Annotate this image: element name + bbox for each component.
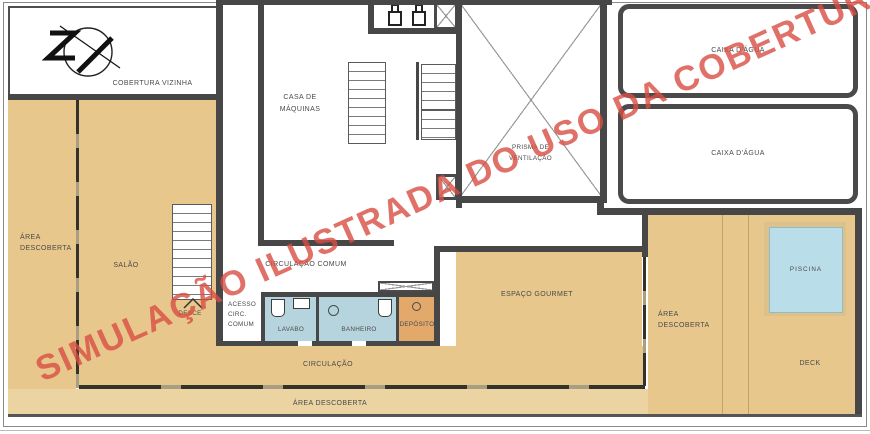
caixa-dagua-2: CAIXA D'ÁGUA (618, 104, 858, 204)
piscina-pool: PISCINA (769, 227, 843, 313)
deck-line-2 (748, 215, 749, 414)
wall-top (216, 0, 612, 5)
wall-gourmet-top (434, 246, 648, 252)
circulacao-label: CIRCULAÇÃO (273, 360, 383, 371)
stairs-center-rail (416, 62, 419, 140)
deck-label: DECK (780, 359, 840, 370)
piscina-label: PISCINA (790, 265, 822, 274)
casa-de-maquinas-label: CASA DE MÁQUINAS (265, 92, 335, 116)
pump-icon (410, 3, 428, 27)
glass-wall-gourmet-right (643, 257, 646, 386)
area-descoberta-right-label: ÁREA DESCOBERTA (658, 310, 714, 331)
deposito-label: DEPÓSITO (395, 320, 439, 329)
glass-wall-bottom (79, 385, 645, 389)
wall-salao-top (8, 94, 217, 100)
sink-icon (293, 298, 310, 309)
area-descoberta-bottom-label: ÁREA DESCOBERTA (275, 399, 385, 410)
wall-below-tanks (597, 208, 862, 215)
stairs-casa-maquinas-left (348, 62, 386, 144)
plan-bottom-edge-line (0, 430, 870, 431)
wall-bath-bottom (216, 341, 439, 346)
espaco-gourmet-floor (440, 252, 642, 385)
floor-plan: CAIXA D'ÁGUA CAIXA D'ÁGUA (0, 0, 870, 434)
ventilation-x-icon (378, 281, 434, 292)
wall-plan-bottom (8, 414, 862, 417)
door-gap-banheiro (352, 341, 366, 346)
deck-line-1 (722, 215, 723, 414)
stairs-casa-maquinas-right-upper (421, 64, 456, 110)
door-gap-lavabo (298, 341, 312, 346)
shaft-x-icon (434, 2, 458, 30)
wall-casa-left (258, 0, 264, 244)
toilet-icon (271, 299, 285, 317)
shower-icon (328, 305, 339, 316)
wall-niche-bottom (368, 28, 456, 34)
caixa-dagua-2-label: CAIXA D'ÁGUA (711, 149, 765, 160)
lavabo-label: LAVABO (263, 325, 319, 334)
drain-icon (412, 302, 421, 311)
pump-icon (386, 3, 404, 27)
toilet-icon (378, 299, 392, 317)
banheiro-label: BANHEIRO (320, 325, 398, 334)
wall-bath-top (261, 292, 436, 297)
north-arrow-icon (20, 10, 130, 90)
salao-label: SALÃO (96, 261, 156, 272)
espaco-gourmet-label: ESPAÇO GOURMET (477, 290, 597, 301)
cobertura-vizinha-label: COBERTURA VIZINHA (95, 79, 210, 90)
wall-niche-left (368, 0, 374, 30)
wall-prisma-bottom (456, 196, 606, 203)
wall-right-outer (855, 208, 862, 416)
area-descoberta-left-label: ÁREA DESCOBERTA (20, 233, 76, 254)
stairs-casa-maquinas-right-lower (421, 110, 456, 140)
